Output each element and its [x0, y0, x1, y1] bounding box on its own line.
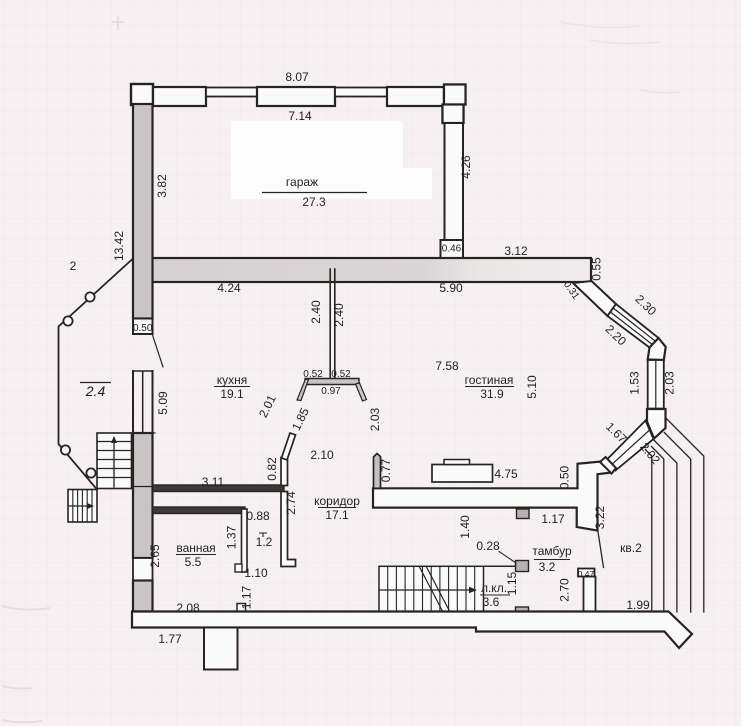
svg-text:3.82: 3.82: [155, 174, 169, 198]
svg-text:4.24: 4.24: [217, 281, 241, 295]
svg-text:5.90: 5.90: [439, 281, 463, 295]
svg-text:1.37: 1.37: [225, 525, 239, 549]
svg-text:2.65: 2.65: [148, 544, 162, 568]
svg-text:2: 2: [70, 259, 77, 273]
svg-text:л.кл.: л.кл.: [481, 581, 507, 595]
svg-text:3.22: 3.22: [593, 505, 607, 529]
svg-text:31.9: 31.9: [480, 387, 504, 401]
svg-text:0.82: 0.82: [265, 457, 279, 481]
svg-text:кухня: кухня: [217, 373, 248, 387]
svg-text:0.28: 0.28: [476, 539, 500, 553]
svg-text:ванная: ванная: [176, 541, 215, 555]
svg-text:0.50: 0.50: [558, 465, 572, 489]
svg-text:5.5: 5.5: [185, 555, 202, 569]
svg-text:2.74: 2.74: [284, 491, 298, 515]
svg-text:2.40: 2.40: [332, 303, 346, 327]
svg-text:7.58: 7.58: [435, 359, 459, 373]
svg-text:4.75: 4.75: [494, 467, 518, 481]
svg-text:2.40: 2.40: [309, 300, 323, 324]
svg-text:5.10: 5.10: [525, 375, 539, 399]
svg-text:0.52: 0.52: [303, 369, 323, 380]
svg-text:1.40: 1.40: [458, 515, 472, 539]
svg-text:1.17: 1.17: [541, 512, 565, 526]
svg-text:1.53: 1.53: [628, 371, 642, 395]
svg-text:3.11: 3.11: [202, 475, 225, 489]
svg-text:1.17: 1.17: [240, 585, 254, 609]
svg-text:0.88: 0.88: [246, 509, 270, 523]
svg-text:27.3: 27.3: [302, 195, 326, 209]
svg-text:2.10: 2.10: [310, 448, 334, 462]
svg-text:1.10: 1.10: [244, 566, 268, 580]
svg-text:1.15: 1.15: [505, 571, 519, 595]
svg-text:1.99: 1.99: [626, 598, 650, 612]
svg-text:0.52: 0.52: [331, 369, 351, 380]
svg-text:4.26: 4.26: [459, 155, 473, 179]
svg-text:2.03: 2.03: [663, 371, 677, 395]
svg-text:2.08: 2.08: [176, 601, 200, 615]
svg-text:8.07: 8.07: [285, 70, 309, 84]
svg-text:0.50: 0.50: [133, 323, 153, 334]
svg-text:19.1: 19.1: [220, 387, 244, 401]
svg-text:0.97: 0.97: [321, 386, 341, 397]
svg-text:1.2: 1.2: [256, 535, 273, 549]
svg-text:0.77: 0.77: [379, 458, 393, 482]
svg-text:гараж: гараж: [286, 175, 318, 189]
svg-text:13.42: 13.42: [112, 231, 126, 261]
svg-text:3.12: 3.12: [504, 244, 528, 258]
svg-text:7.14: 7.14: [288, 109, 312, 123]
svg-text:кв.2: кв.2: [620, 541, 642, 555]
svg-text:0.46: 0.46: [442, 244, 462, 255]
svg-text:2.4: 2.4: [85, 383, 106, 399]
svg-text:тамбур: тамбур: [532, 544, 572, 558]
svg-text:5.09: 5.09: [156, 391, 170, 415]
svg-text:2.03: 2.03: [368, 407, 382, 431]
svg-text:3.2: 3.2: [539, 560, 556, 574]
svg-text:0.47: 0.47: [578, 569, 595, 579]
svg-text:17.1: 17.1: [325, 508, 349, 522]
svg-text:1.77: 1.77: [158, 632, 182, 646]
svg-text:гостиная: гостиная: [465, 373, 514, 387]
svg-text:коридор: коридор: [314, 494, 360, 508]
svg-text:0.55: 0.55: [590, 257, 604, 281]
svg-text:3.6: 3.6: [483, 595, 500, 609]
svg-text:2.70: 2.70: [558, 578, 572, 602]
